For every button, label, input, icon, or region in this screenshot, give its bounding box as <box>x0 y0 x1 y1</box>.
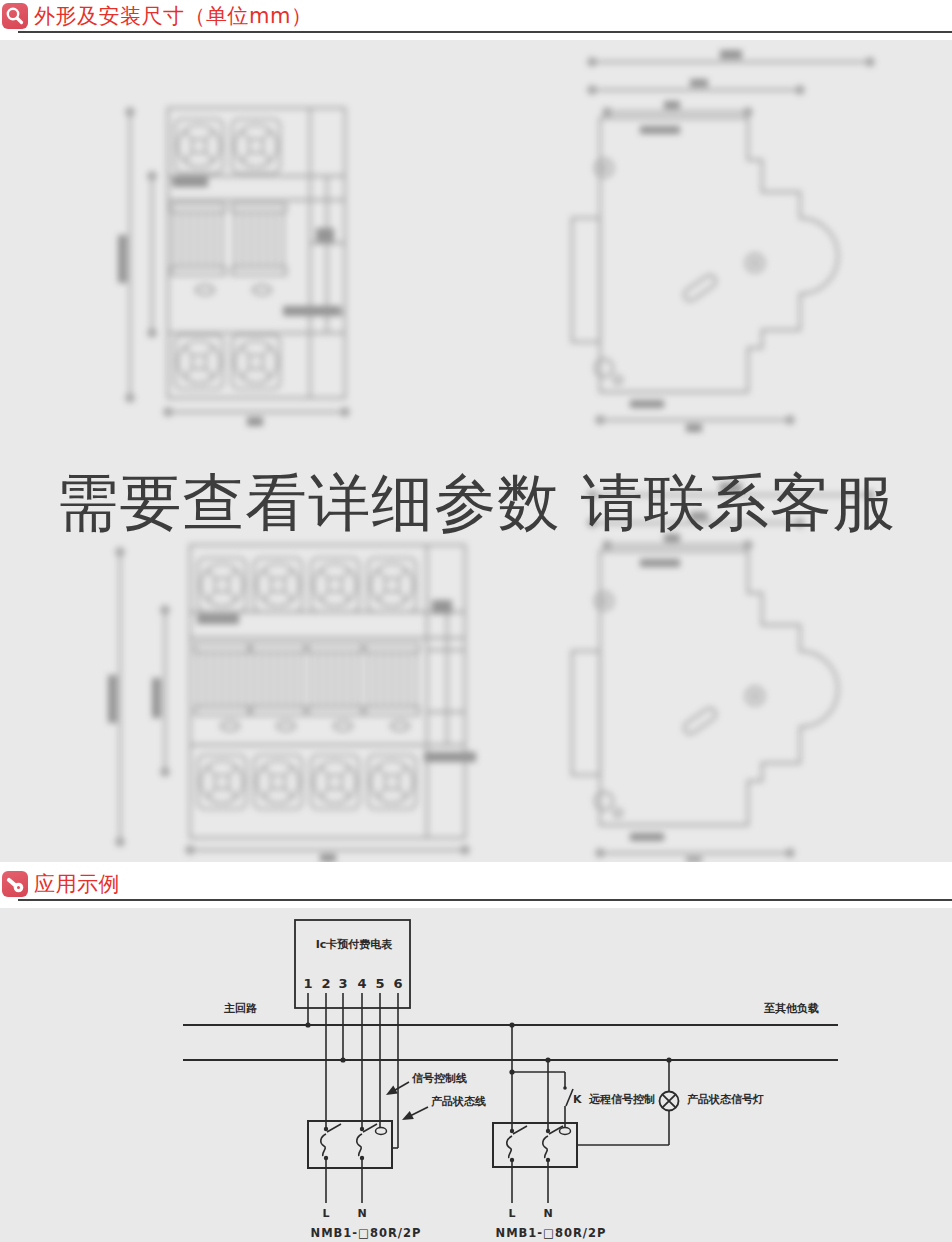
status-lamp-label: 产品状态信号灯 <box>686 1093 764 1106</box>
remote-signal-label: 远程信号控制 <box>588 1093 655 1106</box>
junction-dot <box>305 1022 310 1027</box>
signal-terminal <box>376 1128 387 1135</box>
application-section-header: 应用示例 <box>0 862 952 908</box>
meter-label: Ic卡预付费电表 <box>316 938 394 951</box>
right-breaker: L N NMB1-□80R/2P K 远程信号控制 <box>493 1022 655 1240</box>
signal-terminal <box>560 1128 571 1135</box>
application-section-title: 应用示例 <box>34 870 120 898</box>
right-model-label: NMB1-□80R/2P <box>496 1226 607 1240</box>
dimensions-section-header: 外形及安装尺寸（单位mm） <box>0 0 952 40</box>
contact-service-notice: 需要查看详细参数 请联系客服 <box>0 464 952 542</box>
right-n-label: N <box>543 1207 552 1220</box>
left-breaker: L N NMB1-□80R/2P <box>308 1121 421 1240</box>
left-n-label: N <box>357 1207 366 1220</box>
main-circuit-label: 主回路 <box>224 1002 257 1015</box>
magnifier-icon <box>2 3 28 29</box>
application-section-body: Ic卡预付费电表 1 2 3 4 5 6 主回路 至其他负载 <box>0 908 952 1242</box>
right-l-label: L <box>508 1207 515 1220</box>
side-view-top <box>572 50 874 432</box>
product-status-label: 产品状态线 <box>430 1095 486 1108</box>
meter-terminal-4: 4 <box>357 976 366 991</box>
other-loads-label: 至其他负载 <box>764 1002 819 1015</box>
dimensions-section-title: 外形及安装尺寸（单位mm） <box>34 2 312 30</box>
meter-terminal-6: 6 <box>393 976 402 991</box>
left-model-label: NMB1-□80R/2P <box>311 1226 422 1240</box>
header-underline <box>18 31 952 33</box>
product-detail-page: { "page": { "bg": "#e9e9e9", "accent_red… <box>0 0 952 1242</box>
junction-dot <box>340 1057 345 1062</box>
ic-card-meter: Ic卡预付费电表 1 2 3 4 5 6 <box>295 920 410 1008</box>
left-l-label: L <box>322 1207 329 1220</box>
header-underline <box>18 899 952 901</box>
front-view-4p <box>108 545 476 862</box>
switch-k-label: K <box>573 1093 582 1106</box>
dimensions-section-body: 需要查看详细参数 请联系客服 <box>0 40 952 862</box>
meter-terminal-2: 2 <box>321 976 330 991</box>
lamp-icon <box>660 1092 679 1111</box>
signal-control-label: 信号控制线 <box>411 1072 467 1085</box>
stamp-icon <box>2 871 28 897</box>
meter-drop-wires <box>308 993 398 1148</box>
meter-terminal-1: 1 <box>303 976 312 991</box>
remote-switch-branch <box>512 1072 573 1127</box>
application-wiring-diagram: Ic卡预付费电表 1 2 3 4 5 6 主回路 至其他负载 <box>0 908 952 1242</box>
meter-terminal-5: 5 <box>375 976 384 991</box>
signal-line-annotations: 信号控制线 产品状态线 <box>384 1072 486 1124</box>
main-bus-wires <box>183 1025 838 1060</box>
blurred-dimension-drawings <box>0 40 952 862</box>
meter-terminal-3: 3 <box>338 976 347 991</box>
front-view-2p <box>118 108 349 426</box>
